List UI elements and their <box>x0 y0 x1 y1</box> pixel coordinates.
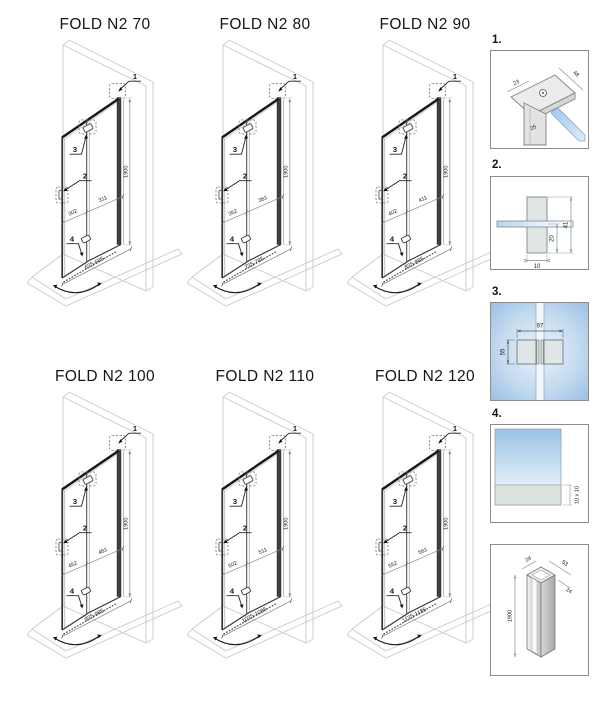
diagram-title: FOLD N2 70 <box>25 12 185 38</box>
dim-97: 97 <box>537 324 544 330</box>
detail-1-marker <box>430 436 446 451</box>
diagram-cell-fold-n2-110: FOLD N2 110 <box>185 364 345 692</box>
profile-inner-stripe <box>532 578 537 654</box>
callout-2-label: 2 <box>403 524 407 533</box>
dim-10: 10 <box>534 264 541 269</box>
wall-profile-bar <box>117 98 121 245</box>
swing-direction-arrow <box>373 634 422 644</box>
wall-profile-bar <box>277 98 281 245</box>
dim-height-label: 1900 <box>443 518 449 530</box>
open-panel-top-edge <box>62 451 119 490</box>
callout-3-label: 3 <box>393 497 397 506</box>
swing-direction-arrow <box>53 634 102 644</box>
profile-right-face <box>541 575 555 657</box>
callout-1-label: 1 <box>293 424 297 433</box>
dim-55: 55 <box>501 348 507 355</box>
dim-right-panel-label: 311 <box>98 195 108 204</box>
pivot-top-view-drawing: 10 20 41 <box>491 177 588 269</box>
dim-right-panel-label: 561 <box>418 547 429 556</box>
callout-2-label: 2 <box>83 524 87 533</box>
detail-1-box: 23 48 25 <box>490 50 589 149</box>
door-assembly <box>376 84 446 282</box>
diagram-cell-fold-n2-90: FOLD N2 90 <box>345 12 505 340</box>
wall-profile-detail-drawing: 23 48 25 <box>491 51 588 148</box>
callout-1-label: 1 <box>453 424 457 433</box>
callout-3-label: 3 <box>73 497 77 506</box>
door-assembly <box>376 436 446 634</box>
callout-1-label: 1 <box>293 72 297 81</box>
dim-right-panel-label: 411 <box>418 195 428 204</box>
callout-3-label: 3 <box>233 145 237 154</box>
detail-4-dims: 10 x 10 <box>563 485 581 505</box>
diagram-title: FOLD N2 90 <box>345 12 505 38</box>
shower-tray <box>27 601 182 658</box>
detail-1-marker <box>110 436 126 451</box>
diagram-title: FOLD N2 110 <box>185 364 345 390</box>
glass-strip <box>497 221 573 227</box>
callout-2-label: 2 <box>83 172 87 181</box>
shower-door-drawing: 1 3 2 4 1900 552 561 1175-1185 <box>345 390 505 692</box>
dim-41: 41 <box>564 221 570 228</box>
wall-profile-bar <box>277 450 281 597</box>
dim-top-24: 24 <box>524 556 532 564</box>
callout-3-label: 3 <box>233 497 237 506</box>
open-panel-top-edge <box>382 451 439 490</box>
diagram-cell-fold-n2-70: FOLD N2 70 <box>25 12 185 340</box>
dim-side-24: 24 <box>564 587 572 595</box>
hinge-plate-right <box>544 340 563 364</box>
shower-tray <box>187 249 342 306</box>
detail-2-number: 2. <box>492 159 502 171</box>
callout-2-label: 2 <box>243 524 247 533</box>
callout-2-label: 2 <box>243 172 247 181</box>
glass-edges <box>64 452 124 596</box>
dim-height-label: 1900 <box>443 166 449 178</box>
diagram-cell-fold-n2-80: FOLD N2 80 <box>185 12 345 340</box>
diagram-title: FOLD N2 80 <box>185 12 345 38</box>
dim-right-panel-label: 461 <box>98 547 109 556</box>
seal-strip <box>495 485 561 505</box>
dim-right-panel-label: 361 <box>258 195 269 204</box>
dim-seal: 10 x 10 <box>575 486 581 504</box>
dim-53: 53 <box>560 559 568 567</box>
open-panel-top-edge <box>382 99 439 138</box>
shower-door-drawing: 1 3 2 4 1900 402 411 875-885 <box>345 38 505 340</box>
dim-20: 20 <box>550 235 556 242</box>
dim-height-label: 1900 <box>123 166 129 178</box>
glass-pane <box>551 107 585 141</box>
hinge-front-view-drawing: 97 55 <box>491 303 588 400</box>
wall-profile-bar <box>437 450 441 597</box>
profile-section-box: 24 53 24 1900 <box>490 544 589 676</box>
callout-4-label: 4 <box>70 587 75 596</box>
swing-direction-arrow <box>53 282 102 292</box>
detail-1-marker <box>430 84 446 99</box>
callout-4-label: 4 <box>230 587 235 596</box>
callout-1-label: 1 <box>133 72 137 81</box>
callout-3-label: 3 <box>393 145 397 154</box>
vertical-profile-drawing: 24 53 24 1900 <box>491 545 588 675</box>
wall-profile-bar <box>117 450 121 597</box>
detail-3-box: 97 55 <box>490 302 589 401</box>
dim-1900: 1900 <box>508 610 514 622</box>
shower-door-drawing: 1 3 2 4 1900 352 361 775-785 <box>185 38 345 340</box>
diagram-cell-fold-n2-100: FOLD N2 100 <box>25 364 185 692</box>
glass-edges <box>224 452 284 596</box>
detail-4-box: 10 x 10 <box>490 424 589 523</box>
detail-1-marker <box>270 84 286 99</box>
door-assembly <box>216 84 286 282</box>
callout-4-label: 4 <box>390 587 395 596</box>
swing-direction-arrow <box>213 634 262 644</box>
door-assembly <box>56 84 126 282</box>
diagram-title: FOLD N2 120 <box>345 364 505 390</box>
diagram-title: FOLD N2 100 <box>25 364 185 390</box>
open-panel-top-edge <box>222 99 279 138</box>
detail-1-number: 1. <box>492 34 502 46</box>
dim-48: 48 <box>571 70 580 79</box>
callout-1-label: 1 <box>453 72 457 81</box>
shower-door-drawing: 1 3 2 4 1900 502 511 1075-1085 <box>185 390 345 692</box>
hinge-plate-left <box>517 340 536 364</box>
dim-height-label: 1900 <box>123 518 129 530</box>
swing-direction-arrow <box>373 282 422 292</box>
glass-edges <box>384 452 444 596</box>
glass-edges <box>384 100 444 244</box>
shower-tray <box>27 249 182 306</box>
shower-tray <box>347 249 502 306</box>
door-assembly <box>56 436 126 634</box>
swing-direction-arrow <box>213 282 262 292</box>
detail-2-box: 10 20 41 <box>490 176 589 270</box>
dim-height-label: 1900 <box>283 166 289 178</box>
open-panel-top-edge <box>62 99 119 138</box>
detail-4-number: 4. <box>492 408 502 420</box>
callout-1-label: 1 <box>133 424 137 433</box>
detail-1-marker <box>110 84 126 99</box>
wall-profile-bar <box>437 98 441 245</box>
door-assembly <box>216 436 286 634</box>
callout-4-label: 4 <box>390 235 395 244</box>
callout-3-label: 3 <box>73 145 77 154</box>
callout-4-label: 4 <box>70 235 75 244</box>
shower-door-drawing: 1 3 2 4 1900 302 311 675-685 <box>25 38 185 340</box>
open-panel-top-edge <box>222 451 279 490</box>
dim-height-label: 1900 <box>283 518 289 530</box>
callout-4-label: 4 <box>230 235 235 244</box>
bottom-seal-detail-drawing: 10 x 10 <box>491 425 588 522</box>
dim-right-panel-label: 511 <box>258 547 268 556</box>
page: { "diagrams": [ { "title": "FOLD N2 70",… <box>0 0 607 720</box>
glass-edges <box>64 100 124 244</box>
diagram-cell-fold-n2-120: FOLD N2 120 <box>345 364 505 692</box>
glass-edges <box>224 100 284 244</box>
shower-door-drawing: 1 3 2 4 1900 452 461 975-985 <box>25 390 185 692</box>
callout-2-label: 2 <box>403 172 407 181</box>
detail-1-marker <box>270 436 286 451</box>
detail-3-number: 3. <box>492 286 502 298</box>
